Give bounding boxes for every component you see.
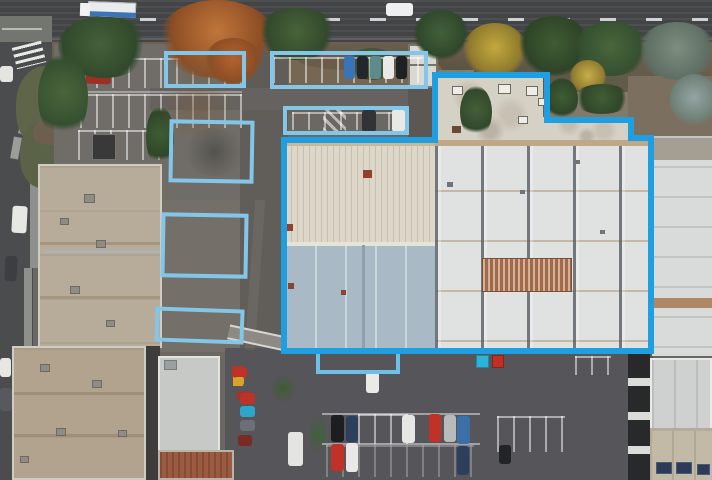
skylight <box>498 84 511 94</box>
roof-vent <box>92 380 102 388</box>
roof-vent <box>70 286 80 294</box>
annex-stain <box>452 126 461 133</box>
roof-vent-red <box>288 283 294 289</box>
boundary-rect-parking-1 <box>164 51 246 88</box>
building-gray-roof <box>158 356 220 452</box>
building-east-concrete <box>650 138 712 160</box>
roof-vent <box>20 456 29 463</box>
main-roof-northwest-cream <box>285 140 435 245</box>
main-roof-southwest-gray <box>285 245 437 348</box>
skylight <box>526 86 538 96</box>
bush <box>310 414 326 460</box>
tree-gray-green <box>638 22 712 80</box>
skylight <box>518 116 528 124</box>
boundary-rect-parking-2 <box>168 119 254 183</box>
main-roof-east-sawtooth <box>435 140 650 348</box>
boundary-annex-right <box>544 72 550 123</box>
building-east-tan-band <box>652 298 712 308</box>
bush <box>271 376 295 404</box>
car-blue <box>457 416 470 444</box>
car-parked-white <box>11 206 27 234</box>
car-dark-red <box>238 435 252 446</box>
roof-vent <box>60 218 69 225</box>
roof-dot <box>600 230 605 234</box>
roof-vent <box>56 428 66 436</box>
car-dark-blue <box>457 446 469 475</box>
roof-vent <box>118 430 127 437</box>
boundary-step-h1 <box>544 117 634 123</box>
boundary-rect-parking-row <box>270 51 428 89</box>
roof-vent <box>106 320 115 327</box>
dumpster-red <box>492 355 504 368</box>
car-parked-white <box>0 66 13 82</box>
car-parked-white <box>0 358 11 377</box>
building-west-upper <box>38 164 162 348</box>
car-white <box>402 415 415 443</box>
boundary-main-bottom <box>281 348 654 354</box>
car-cyan <box>240 406 255 417</box>
hedge <box>460 86 492 138</box>
van-white <box>366 372 379 393</box>
building-east <box>650 136 712 356</box>
boundary-annex-top <box>432 72 550 78</box>
roof-vent <box>96 240 106 248</box>
car-black <box>331 415 344 442</box>
rooftop-unit <box>164 360 177 370</box>
solar-panel <box>697 464 710 475</box>
boundary-rect-parking-strip <box>283 106 409 135</box>
truck-cab <box>80 3 90 16</box>
dark-panel-column <box>628 352 650 480</box>
roof-vent <box>40 364 50 372</box>
roof-dot <box>575 160 580 164</box>
rust-grate <box>482 258 572 292</box>
roof-vent <box>84 194 95 203</box>
roof-vent-red <box>286 224 293 231</box>
van-white <box>288 432 303 466</box>
tree-green <box>38 54 88 140</box>
car-dark-blue <box>346 416 358 442</box>
roof-vent-red <box>341 290 346 295</box>
car-gray <box>240 420 255 431</box>
roof-vent-red <box>363 170 372 178</box>
roof-dot <box>520 190 525 194</box>
car-parked-dark <box>4 256 17 282</box>
main-roof-east-edge <box>435 140 650 146</box>
forklift-yellow <box>235 377 244 385</box>
boundary-main-top <box>281 137 438 143</box>
car-red <box>429 414 441 442</box>
car-black <box>499 445 511 464</box>
roof-dot <box>447 182 453 187</box>
car-red <box>240 393 255 404</box>
boundary-main-left <box>281 137 287 354</box>
boundary-annex-left <box>432 74 438 143</box>
dumpster-cyan <box>476 355 489 368</box>
hedge <box>546 78 578 120</box>
roof-seam <box>14 392 144 395</box>
car-silver <box>444 415 456 442</box>
hedge <box>573 84 631 114</box>
bush-blue-gray <box>670 74 712 126</box>
boundary-main-right <box>648 135 654 354</box>
main-roof-sw-seam <box>362 245 365 348</box>
roof-seam <box>40 296 160 299</box>
car-white <box>346 443 358 472</box>
solar-panel <box>656 462 672 474</box>
island-line <box>2 28 42 30</box>
car-parked-gray <box>0 388 12 411</box>
car-red <box>331 444 344 471</box>
skylight <box>452 86 463 95</box>
loading-pit <box>92 134 116 160</box>
building-west-lower <box>12 346 146 480</box>
roof-pipe <box>44 250 160 253</box>
building-terracotta <box>158 450 234 480</box>
solar-panel <box>676 462 692 474</box>
main-roof-sw-topline <box>285 242 437 246</box>
parking-bays <box>358 414 408 444</box>
boundary-rect-parking-3 <box>160 212 248 279</box>
parking-bays <box>575 356 611 375</box>
aerial-photo-stage <box>0 0 712 480</box>
boundary-rect-parking-4 <box>154 306 244 344</box>
car-on-road-white <box>386 3 413 16</box>
